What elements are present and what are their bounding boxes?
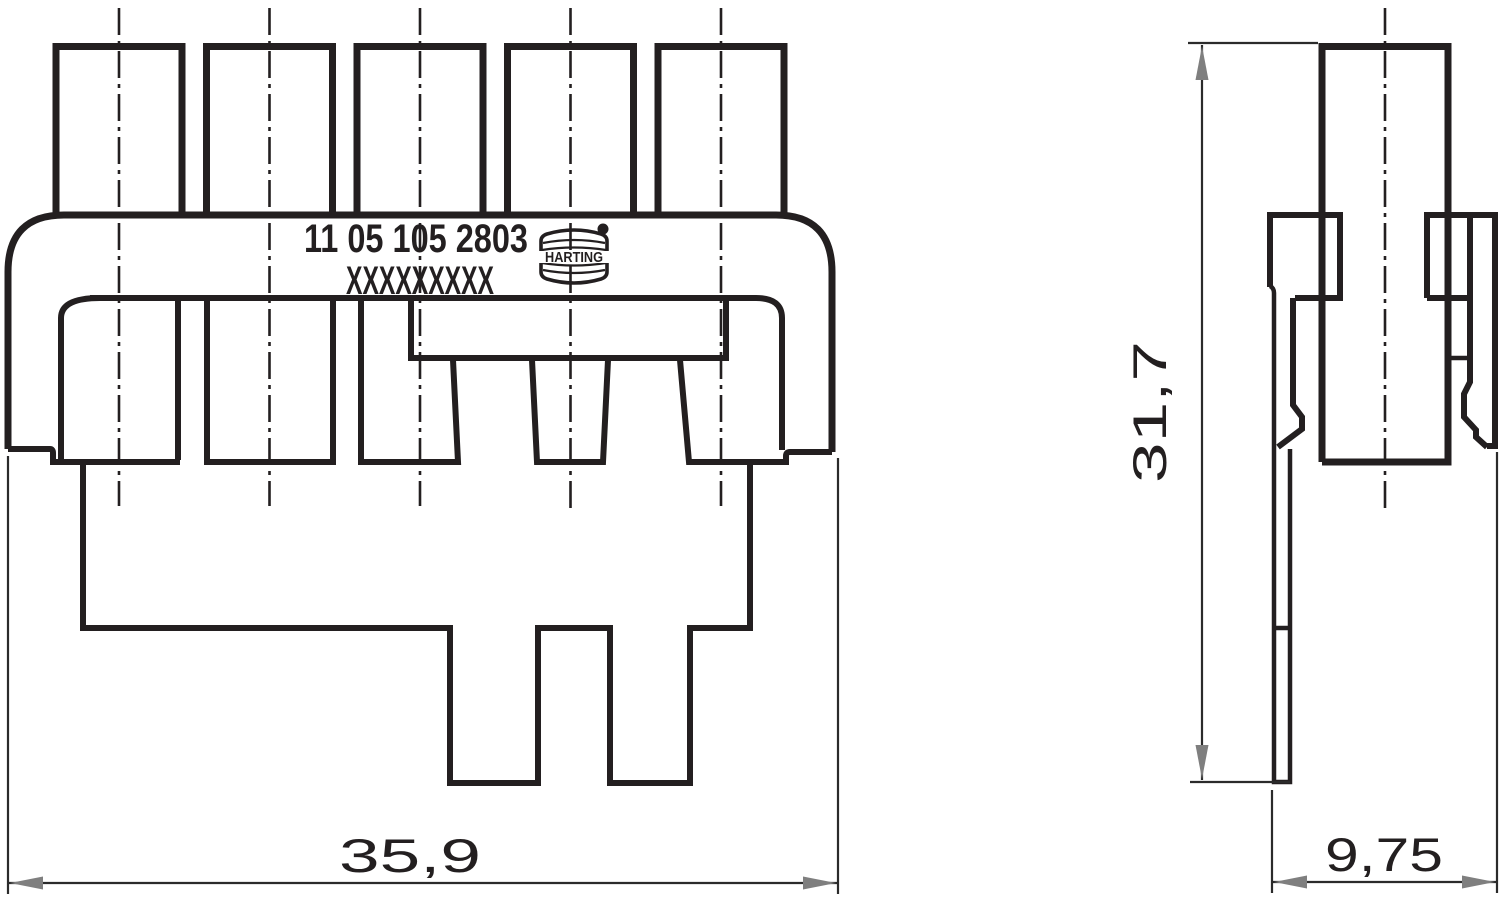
left-wing-block [1270,215,1340,298]
logo-line-bottom-2 [543,270,605,273]
logo-line-top-1 [543,240,605,243]
technical-drawing-svg: 35,9 31,7 9,75 11 05 105 2803 XXXXXXXXX [0,0,1500,897]
registered-trademark-dot-icon [598,224,609,235]
socket-bushings [178,298,608,462]
dimension-depth-value: 9,75 [1325,828,1443,881]
arrowhead-left-icon [1274,876,1307,889]
arrowhead-left-icon [10,877,43,890]
side-left-wing [1270,215,1340,782]
lower-body-and-legs-outline [83,462,750,783]
arrowhead-right-icon [1462,876,1495,889]
dimension-width-35-9: 35,9 [8,456,838,894]
part-number-text: 11 05 105 2803 [304,217,528,261]
housing-bottom-right-edge [680,360,832,462]
right-wing-latch-hook [1464,215,1487,447]
cavity-contour-left [61,298,100,459]
logo-wordmark: HARTING [545,250,603,266]
housing-bottom-left-edge [8,449,180,462]
dimension-width-value: 35,9 [339,829,481,882]
keying-block [411,300,726,358]
left-wing-latch-hook [1278,298,1302,447]
arrowhead-down-icon [1196,745,1209,779]
dimension-depth-9-75: 9,75 [1272,452,1497,893]
arrowhead-up-icon [1196,46,1209,80]
marking-placeholder-text: XXXXXXXXX [346,259,494,303]
side-view [1270,8,1495,782]
arrowhead-right-icon [803,877,836,890]
cavity-contour-top-right [90,298,782,450]
dimension-height-value: 31,7 [1123,341,1176,483]
side-right-wing [1427,215,1495,447]
drawing-canvas: 35,9 31,7 9,75 11 05 105 2803 XXXXXXXXX [0,0,1500,897]
front-view [8,8,832,783]
harting-logo: HARTING [538,224,610,284]
part-marking: 11 05 105 2803 XXXXXXXXX HARTING [304,217,610,303]
left-wing-leg-profile [1270,286,1290,782]
